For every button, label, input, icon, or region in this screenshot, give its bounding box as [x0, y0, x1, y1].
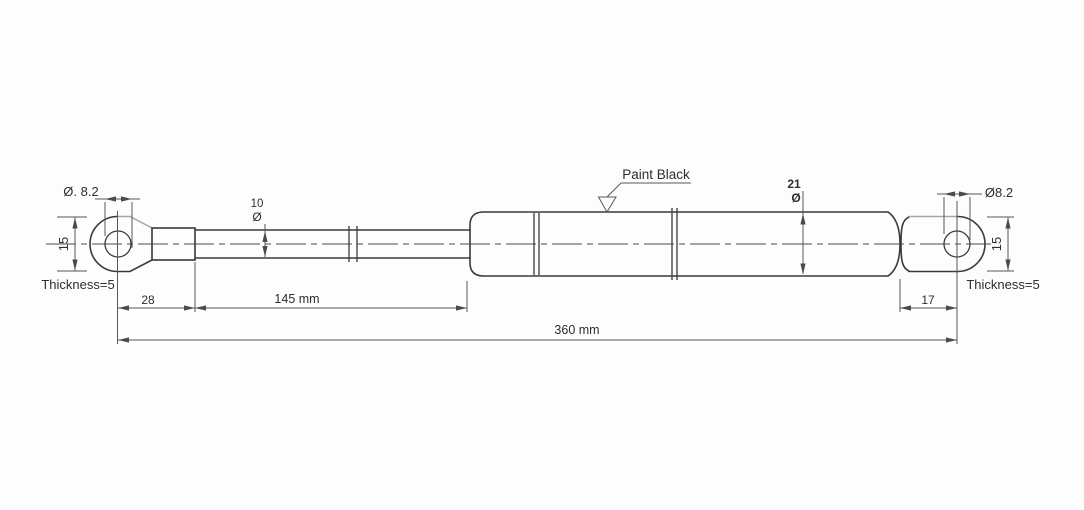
dim-cylinder-diameter: 21 Ø	[787, 177, 805, 275]
extension-lines	[105, 202, 132, 248]
left-hole-diameter-label: Ø. 8.2	[63, 184, 98, 199]
arrowhead-up	[800, 214, 805, 225]
left-eyelet-bottom-chamfer	[118, 260, 153, 272]
right-hole-diameter-label: Ø8.2	[985, 185, 1013, 200]
dim-145-label: 145 mm	[274, 292, 319, 306]
paint-black-label: Paint Black	[622, 167, 690, 182]
arrowhead-right	[184, 305, 195, 310]
cylinder-diameter-value: 21	[787, 177, 801, 191]
dim-right-hole-diameter: Ø8.2	[937, 185, 1013, 240]
arrowhead-down	[72, 260, 77, 271]
dim-right-eyelet-offset: 17	[900, 279, 957, 312]
arrowhead-left	[195, 305, 206, 310]
arrowhead-up	[72, 218, 77, 229]
dim-360-label: 360 mm	[554, 323, 599, 337]
arrowhead-up	[1005, 218, 1010, 229]
arrowhead-down	[1005, 260, 1010, 271]
arrowhead-left	[118, 337, 129, 342]
dim-rod-diameter: 10 Ø	[251, 198, 268, 257]
dim-total-length: 360 mm	[118, 323, 957, 343]
arrowhead-right	[456, 305, 467, 310]
arrowhead-left	[900, 305, 911, 310]
arrowhead-right	[121, 196, 132, 201]
arrowhead-left	[944, 191, 955, 196]
right-eyelet	[901, 201, 985, 344]
arrowhead-right	[946, 337, 957, 342]
rod-diameter-symbol: Ø	[252, 210, 261, 224]
paint-black-callout: Paint Black	[599, 167, 692, 212]
arrowhead-right	[946, 305, 957, 310]
rod-diameter-value: 10	[251, 198, 264, 210]
arrowhead-down	[262, 246, 267, 257]
arrowhead-up	[262, 231, 267, 242]
dim-right-eyelet-height: 15	[987, 217, 1014, 271]
arrowhead-left	[118, 305, 129, 310]
left-eyelet-height-label: 15	[56, 237, 71, 251]
dim-rod-length: 145 mm	[195, 281, 467, 312]
engineering-drawing-canvas: Ø. 8.2 15 Thickness=5 10 Ø Paint Black 2…	[0, 0, 1084, 510]
dim-eyelet-to-rod: 28	[118, 262, 195, 312]
dim-17-label: 17	[921, 293, 935, 307]
cylinder-diameter-symbol: Ø	[791, 191, 800, 205]
right-thickness-note: Thickness=5	[966, 277, 1039, 292]
paint-black-leader	[607, 183, 621, 197]
arrowhead-down	[800, 264, 805, 275]
dim-28-label: 28	[141, 293, 155, 307]
right-eyelet-height-label: 15	[989, 237, 1004, 251]
left-thickness-note: Thickness=5	[41, 277, 114, 292]
arrowhead-right	[959, 191, 970, 196]
arrowhead-left	[105, 196, 116, 201]
left-eyelet-top-chamfer	[118, 217, 153, 229]
surface-finish-triangle	[599, 197, 617, 212]
gas-spring-drawing: Ø. 8.2 15 Thickness=5 10 Ø Paint Black 2…	[0, 0, 1084, 510]
